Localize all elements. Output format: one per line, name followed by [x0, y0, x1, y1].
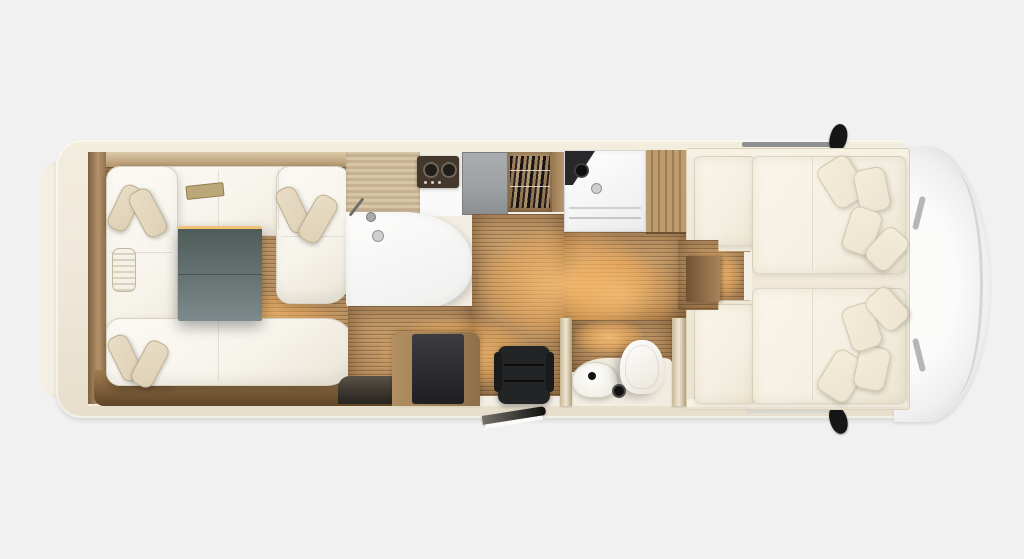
walkway-end-panel — [744, 252, 752, 300]
aisle-floor — [564, 232, 686, 320]
lounge-roll-pillow — [112, 248, 136, 292]
faucet-knob — [366, 212, 376, 222]
shower-tray — [564, 150, 646, 232]
toilet — [620, 340, 664, 394]
kitchen-sink-counter — [346, 212, 472, 310]
wire-shelf — [510, 186, 550, 187]
rear-wall-wood — [88, 152, 106, 404]
mattress-seam — [812, 158, 813, 270]
bottles-and-dishes — [510, 156, 550, 208]
sofa-cushion-seam — [218, 170, 219, 230]
hob-knob — [431, 181, 434, 184]
sofa-cushion-seam — [218, 322, 219, 380]
kitchen-counter-filler — [420, 186, 464, 216]
toilet-seat — [625, 345, 659, 389]
glass-door-track — [569, 207, 641, 209]
chair-armrest — [494, 352, 502, 392]
fridge-panel — [462, 152, 508, 215]
wire-shelf — [510, 170, 550, 171]
toilet-brush — [612, 384, 626, 398]
roof-rail-top — [742, 142, 834, 147]
hob-knob — [424, 181, 427, 184]
bed-mattress-bottom — [694, 304, 756, 404]
bed-mattress-top — [694, 156, 756, 246]
shower-drain — [591, 183, 602, 194]
floorplan-stage — [0, 0, 1024, 559]
glass-door-track — [569, 217, 641, 219]
hob — [417, 156, 459, 188]
washroom-partition — [672, 318, 686, 406]
washbasin — [572, 362, 618, 398]
sink-drain — [372, 230, 384, 242]
chair-seam — [504, 380, 544, 382]
office-chair — [498, 346, 550, 404]
bed-step — [686, 256, 720, 302]
mattress-seam — [812, 290, 813, 400]
basin-drain — [588, 372, 596, 380]
kitchen-divider — [552, 152, 564, 212]
dish-rack-cabinet — [508, 152, 552, 212]
entry-step-block — [338, 376, 396, 404]
table-seam — [178, 274, 262, 275]
chair-armrest — [546, 352, 554, 392]
washroom-partition — [560, 318, 572, 406]
burner — [441, 162, 457, 178]
wardrobe — [646, 150, 689, 234]
chair-seam — [504, 364, 544, 366]
hob-knob — [438, 181, 441, 184]
shower-head — [574, 163, 589, 178]
desk-top — [412, 334, 464, 404]
burner — [423, 162, 439, 178]
lounge-table — [178, 226, 262, 321]
